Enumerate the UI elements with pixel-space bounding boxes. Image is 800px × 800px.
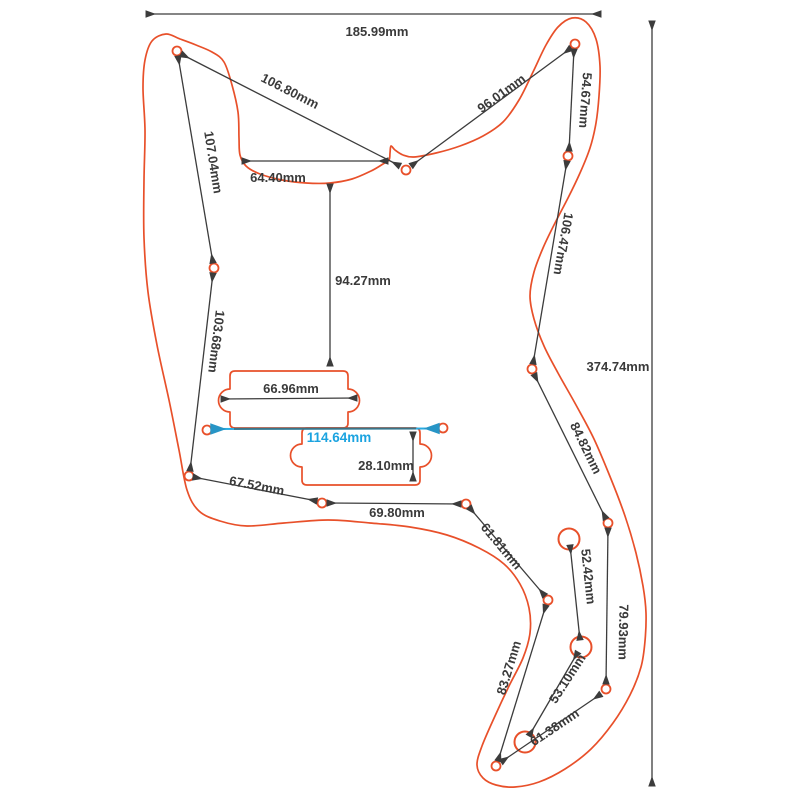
dim-label-79-93: 79.93mm bbox=[616, 604, 632, 660]
dim-label-374-74: 374.74mm bbox=[587, 359, 650, 374]
dim-label-61-81: 61.81mm bbox=[478, 520, 525, 572]
dimension-line-79-93 bbox=[606, 528, 608, 684]
dim-label-61-38: 61.38mm bbox=[527, 705, 582, 749]
screw-hole bbox=[564, 152, 573, 161]
dim-label-28-10: 28.10mm bbox=[358, 458, 414, 473]
drawing-canvas: 185.99mm 106.80mm 96.01mm 54.67mm 107.04… bbox=[0, 0, 800, 800]
dim-label-64-40: 64.40mm bbox=[250, 170, 306, 185]
dimension-line-66-96 bbox=[221, 398, 357, 399]
screw-hole bbox=[318, 499, 327, 508]
screw-hole bbox=[439, 424, 448, 433]
screw-hole bbox=[203, 426, 212, 435]
dim-label-53-10: 53.10mm bbox=[546, 651, 589, 706]
dim-label-69-80: 69.80mm bbox=[369, 505, 425, 520]
dimension-labels: 185.99mm 106.80mm 96.01mm 54.67mm 107.04… bbox=[201, 24, 649, 749]
screw-hole bbox=[185, 472, 194, 481]
screw-hole bbox=[210, 264, 219, 273]
dim-label-107-04: 107.04mm bbox=[201, 130, 226, 194]
dim-label-106-47: 106.47mm bbox=[551, 212, 577, 277]
screw-hole bbox=[528, 365, 537, 374]
screw-hole bbox=[492, 762, 501, 771]
dimension-line-52-42 bbox=[570, 545, 580, 640]
dimension-line-54-67 bbox=[569, 49, 574, 151]
screw-hole bbox=[173, 47, 182, 56]
large-hole bbox=[559, 529, 580, 550]
dim-label-96-01: 96.01mm bbox=[474, 71, 528, 116]
dim-label-185-99: 185.99mm bbox=[346, 24, 409, 39]
dim-label-54-67: 54.67mm bbox=[576, 72, 595, 129]
dim-label-103-68: 103.68mm bbox=[205, 309, 228, 373]
dim-label-114-64: 114.64mm bbox=[307, 430, 372, 445]
screw-hole bbox=[402, 166, 411, 175]
dimension-line-69-80 bbox=[327, 503, 461, 504]
dim-label-106-80: 106.80mm bbox=[259, 70, 322, 112]
dim-label-67-52: 67.52mm bbox=[228, 473, 285, 498]
dim-label-52-42: 52.42mm bbox=[578, 548, 599, 605]
dim-label-94-27: 94.27mm bbox=[335, 273, 391, 288]
screw-hole bbox=[604, 519, 613, 528]
dim-label-66-96: 66.96mm bbox=[263, 381, 319, 396]
screw-hole bbox=[602, 685, 611, 694]
dim-label-84-82: 84.82mm bbox=[567, 420, 605, 477]
pickguard-dimension-diagram: 185.99mm 106.80mm 96.01mm 54.67mm 107.04… bbox=[0, 0, 800, 800]
screw-hole bbox=[544, 596, 553, 605]
screw-hole bbox=[571, 40, 580, 49]
